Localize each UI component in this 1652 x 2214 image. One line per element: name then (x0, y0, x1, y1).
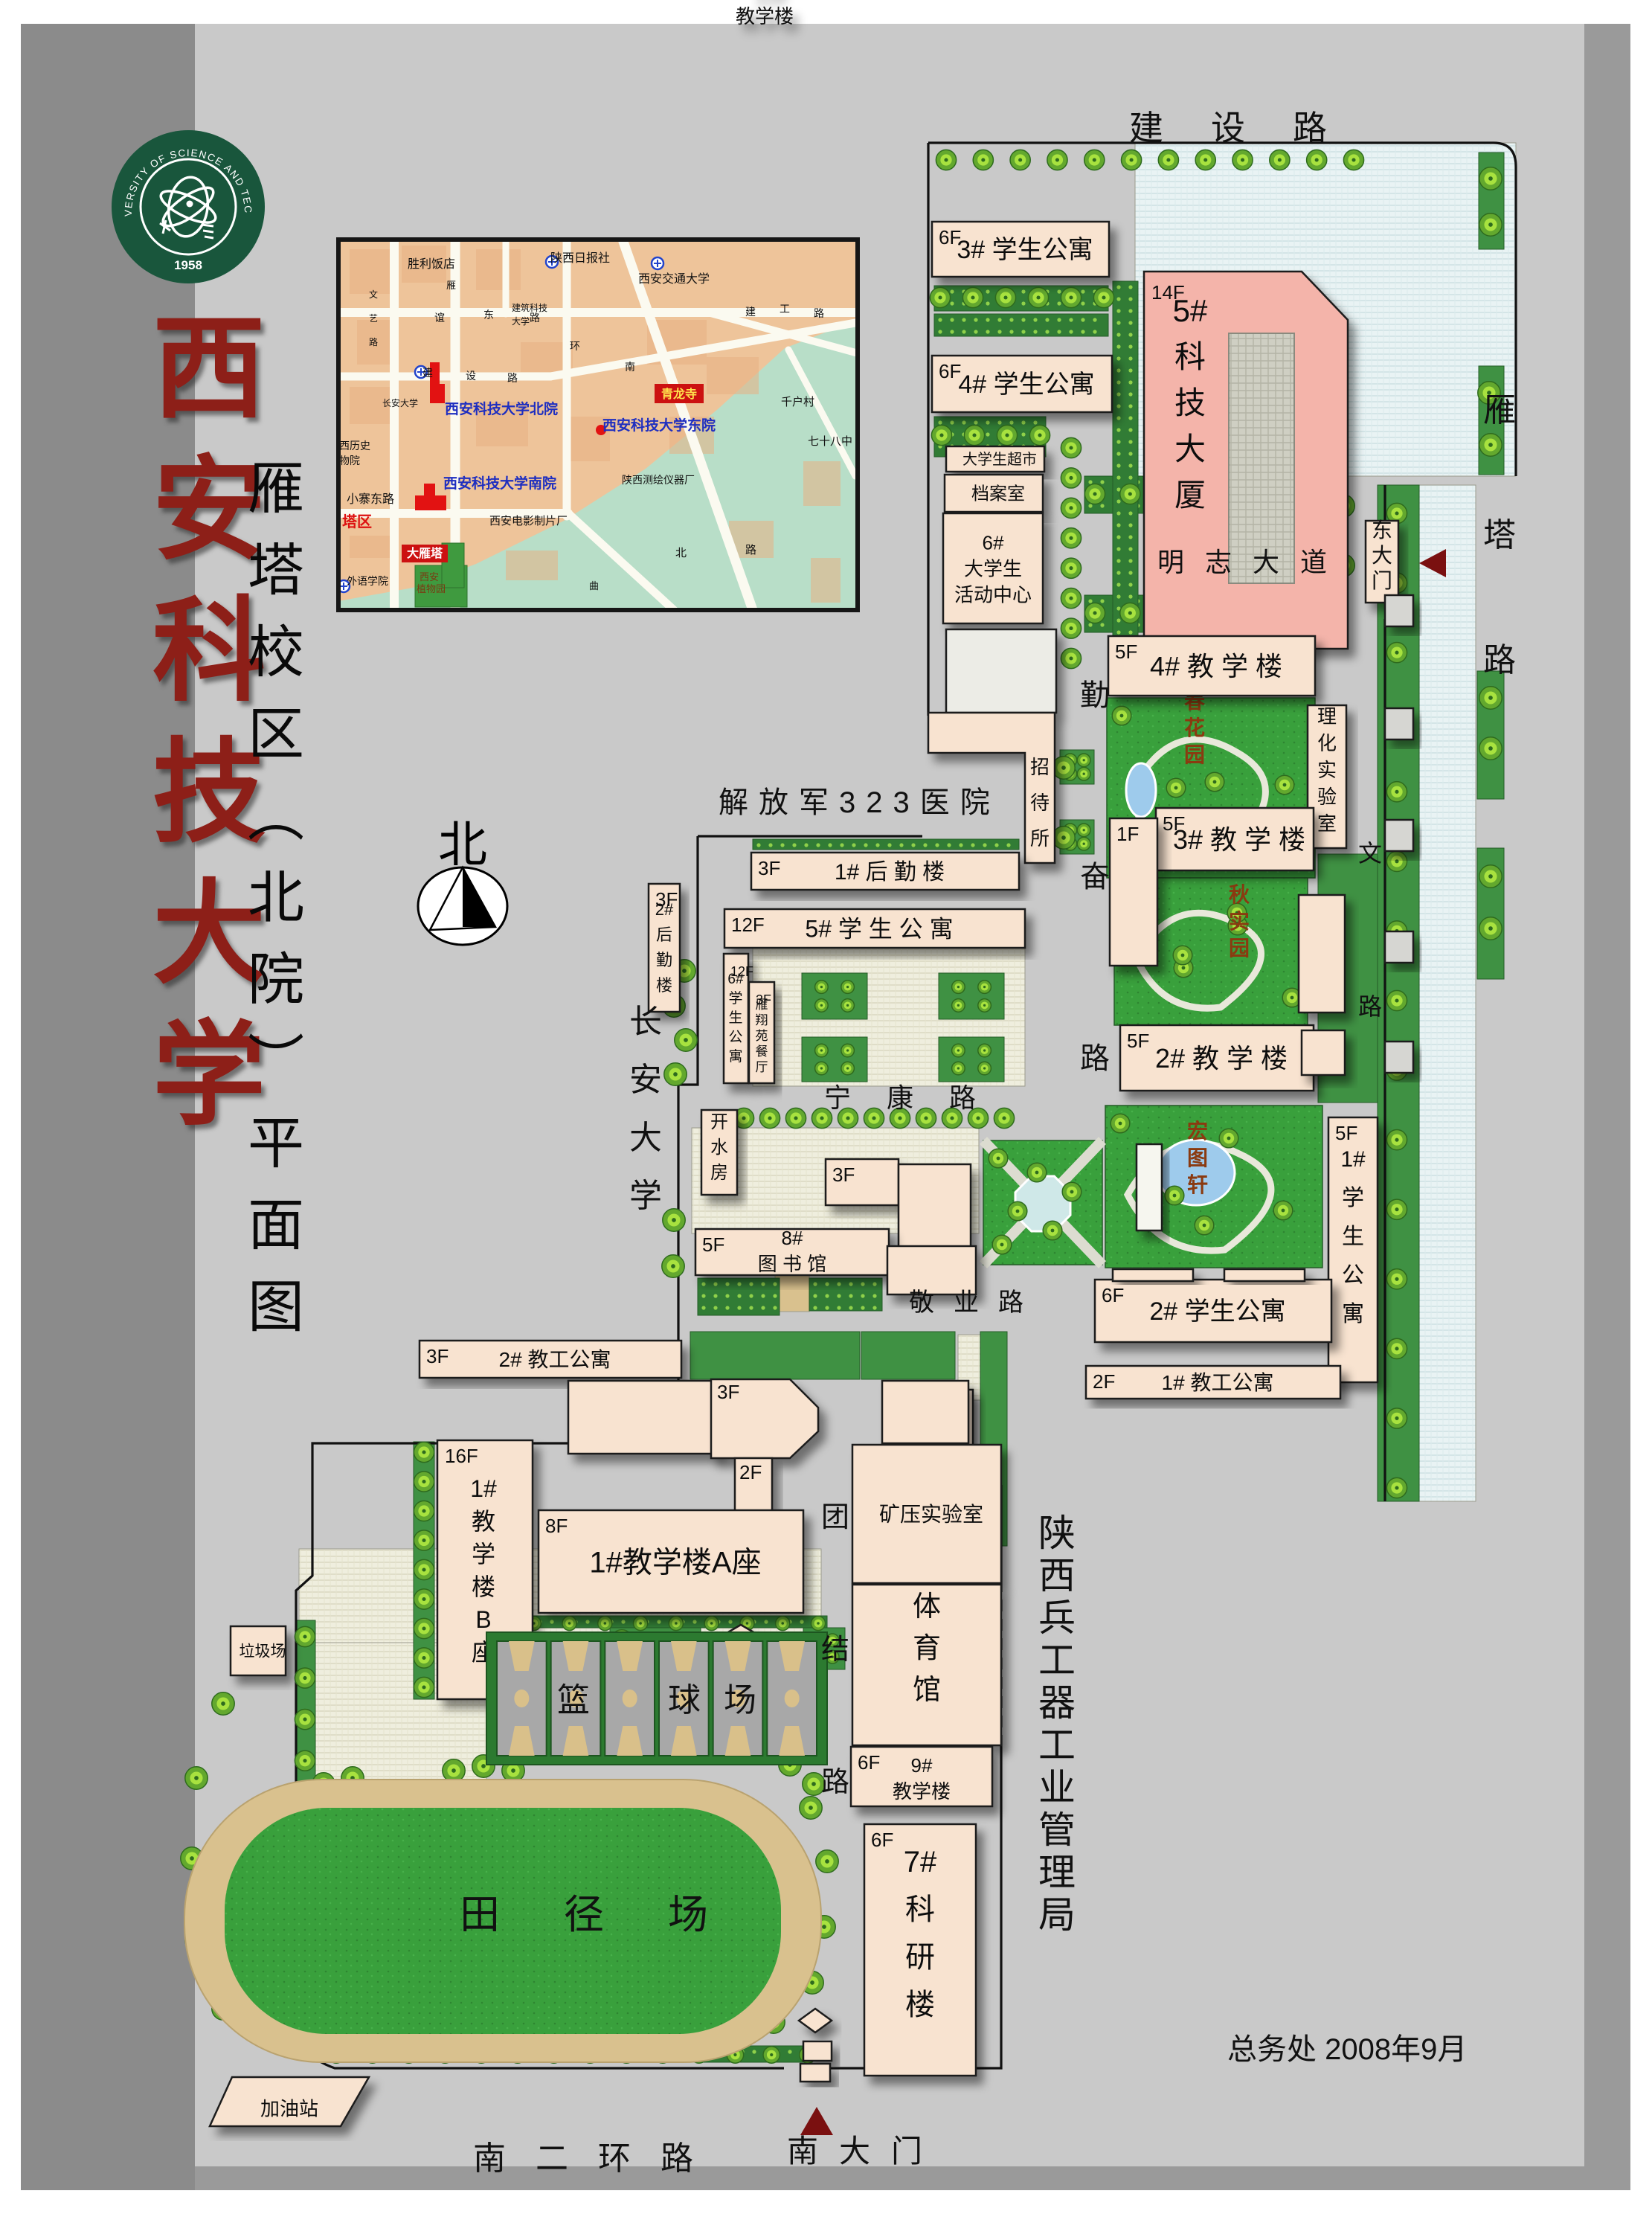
tree-core (1119, 1122, 1122, 1126)
tree-icon (962, 287, 983, 307)
tree-icon (1120, 603, 1140, 623)
tree-core (303, 1634, 306, 1638)
hedge-dot (1116, 463, 1120, 467)
hedge-dot (875, 843, 879, 847)
bed-area (802, 1037, 867, 1082)
building-label-vertical: 开水房 (710, 1112, 728, 1183)
building-shape (803, 2041, 832, 2061)
tree-icon (1084, 150, 1105, 170)
tree-core (825, 1859, 829, 1864)
inset-campus-marker (430, 384, 445, 403)
floor-label-5F: 5F (1115, 641, 1137, 663)
tree-icon (1386, 1130, 1407, 1150)
inset-label-物院: 物院 (339, 455, 360, 466)
tree-core (846, 986, 849, 988)
tree-core (997, 1157, 1000, 1161)
map-label-敬业路: 敬业路 (909, 1289, 1043, 1317)
tree-icon (295, 1668, 315, 1688)
tree-icon (185, 1767, 208, 1789)
hedge-dot (1069, 318, 1073, 321)
hedge-dot (864, 843, 867, 847)
hedge-dot (947, 843, 951, 847)
building-体育馆: 体育馆 (852, 1585, 1001, 1745)
inset-label-建: 建 (422, 367, 433, 379)
hedge-dot (962, 420, 965, 424)
campus-title-vertical: 雁塔校区（北院）平面图 (229, 458, 311, 1358)
tree-icon (952, 999, 965, 1013)
building-label-line: 6# (983, 531, 1004, 553)
tree-core (511, 1768, 515, 1773)
hedge-dot (1069, 330, 1073, 333)
hedge-dot (550, 1620, 553, 1623)
hedge-dot (1128, 416, 1132, 420)
tree-core (1181, 954, 1185, 957)
tree-core (422, 1480, 425, 1483)
hedge-dot (828, 843, 832, 847)
building-5# 学 生 公 寓: 12F5# 学 生 公 寓 (724, 909, 1025, 948)
publisher-date-note: 总务处 2008年9月 (1227, 2025, 1467, 2068)
tree-core (983, 1067, 986, 1069)
building-atrium (1229, 333, 1294, 583)
inset-label-大学: 大学 (512, 315, 530, 327)
building-shape (1299, 895, 1345, 1013)
inset-label-西安交通大学: 西安交通大学 (638, 272, 710, 286)
building-1# 后 勤 楼: 3F1# 后 勤 楼 (751, 853, 1019, 890)
inset-label-植物园: 植物园 (417, 583, 446, 594)
hedge-dot (950, 301, 954, 305)
tree-core (1070, 1190, 1074, 1194)
map-label-南二环路: 南二环路 (473, 2140, 723, 2177)
inset-label-设: 设 (466, 370, 476, 382)
university-logo: XI'AN UNIVERSITY OF SCIENCE AND TECHNOLO… (109, 126, 268, 287)
building-label-line: 9# (911, 1754, 933, 1777)
inset-label-七十八中: 七十八中 (808, 435, 852, 448)
tree-icon (1027, 1163, 1047, 1182)
tree-core (1069, 597, 1073, 600)
tree-icon (1121, 150, 1141, 170)
building-shape (1137, 1144, 1162, 1230)
hedge-dot (938, 420, 942, 424)
tree-icon (1479, 214, 1502, 236)
hedge-dot (1116, 583, 1120, 586)
tree-core (1038, 433, 1041, 437)
building-1#教学楼A座: 8F1#教学楼A座 (539, 1510, 803, 1613)
building: 3F (826, 1159, 899, 1205)
hedge-dot (1116, 333, 1120, 336)
tree-core (1128, 492, 1132, 495)
tree-core (422, 1538, 425, 1542)
tree-core (1093, 611, 1096, 615)
hedge-dot (1128, 404, 1132, 408)
floor-label-1F: 1F (1116, 823, 1139, 845)
tree-icon (1479, 434, 1502, 456)
tree-icon (1061, 588, 1081, 609)
hedge-dot (1116, 499, 1120, 503)
building (1224, 1269, 1305, 1281)
tree-core (1395, 790, 1398, 794)
tree-core (1000, 1243, 1004, 1247)
tree-icon (212, 1692, 234, 1715)
tree-icon (992, 1235, 1012, 1254)
tree-icon (1052, 827, 1075, 849)
hedge-dot (872, 1294, 876, 1297)
tree-core (1055, 158, 1059, 161)
hedge-dot (983, 843, 986, 847)
tree-core (820, 1067, 823, 1069)
tree-core (451, 1768, 456, 1773)
hedge-dot (1128, 356, 1132, 360)
hedge-area (934, 286, 1108, 311)
building-垃圾场: 垃圾场 (231, 1626, 286, 1675)
tree-icon (1010, 150, 1030, 170)
tree-icon (1008, 1201, 1027, 1221)
building-label: 2# 教 学 楼 (1155, 1043, 1288, 1074)
hedge-dot (1116, 392, 1120, 396)
floor-label-3F: 3F (832, 1164, 855, 1186)
hedge-dot (1100, 504, 1104, 507)
tree-icon (1173, 946, 1192, 965)
inset-campus-marker (415, 495, 446, 510)
building-label-line: 8# (782, 1227, 803, 1249)
building-label: 加油站 (260, 2097, 318, 2120)
tree-icon (815, 999, 829, 1013)
hedge-dot (986, 330, 989, 333)
tree-core (976, 1116, 980, 1120)
building-label-vertical: 招待所 (1030, 756, 1050, 850)
court-circle (514, 1690, 529, 1707)
tree-core (1395, 1347, 1398, 1350)
tree-icon (952, 981, 965, 994)
tree-core (221, 1701, 225, 1706)
floor-label-3F: 3F (758, 857, 780, 879)
building-label-vertical: 5#科技大厦 (1173, 293, 1208, 513)
hedge-dot (974, 330, 977, 333)
tree-icon (1043, 1221, 1062, 1240)
logo-year: 1958 (174, 258, 202, 272)
inset-label-陕西日报社: 陕西日报社 (550, 251, 610, 265)
tree-icon (978, 1062, 991, 1075)
building (1302, 1030, 1345, 1075)
tree-core (846, 1116, 849, 1120)
tree-icon (952, 1062, 965, 1075)
hedge-dot (1128, 594, 1132, 598)
tree-icon (841, 1044, 855, 1057)
tree-icon (1479, 737, 1502, 760)
building-shape (899, 1164, 971, 1248)
hedge-dot (837, 1294, 841, 1297)
tree-core (1173, 1194, 1177, 1198)
tree-icon (964, 425, 984, 445)
hedge-dot (1128, 380, 1132, 384)
tree-core (1278, 158, 1282, 161)
inset-label-小寨东路: 小寨东路 (347, 492, 394, 506)
inset-label-西历史: 西历史 (339, 440, 370, 452)
hedge-dot (1128, 321, 1132, 324)
map-label-南大门: 南大门 (787, 2134, 943, 2169)
building-label: 1# 后 勤 楼 (835, 860, 945, 885)
tree-icon (414, 1677, 434, 1697)
building-shape (800, 2064, 830, 2082)
building-label-line: 大学生 (964, 557, 1022, 580)
tree-core (957, 1067, 960, 1069)
hedge-dot (1081, 301, 1084, 305)
hedge-dot (1021, 318, 1025, 321)
tree-icon (1084, 484, 1105, 504)
tree-core (983, 986, 986, 988)
pond (1126, 763, 1156, 817)
hedge-dot (986, 420, 989, 424)
inset-label-建: 建 (745, 306, 756, 318)
building (568, 1381, 717, 1454)
tree-icon (1061, 528, 1081, 548)
tree-icon (414, 1589, 434, 1609)
inset-label-胜利饭店: 胜利饭店 (408, 257, 455, 271)
tree-core (794, 1116, 797, 1120)
tree-core (422, 1626, 425, 1630)
inset-label-路: 路 (530, 312, 540, 324)
tree-core (746, 1622, 749, 1625)
building-label: 4# 教 学 楼 (1150, 651, 1282, 681)
building-label-line: 教学楼 (736, 5, 794, 28)
tree-icon (1029, 425, 1050, 445)
hedge-dot (713, 1306, 717, 1309)
hedge-dot (1006, 843, 1010, 847)
hedge-dot (773, 1282, 777, 1286)
tree-core (1093, 492, 1096, 495)
hedge-dot (1033, 318, 1037, 321)
tree-core (1291, 996, 1294, 1000)
hedge-dot (899, 843, 903, 847)
tree-core (983, 1004, 986, 1007)
tree-icon (815, 1062, 829, 1075)
tree-core (1488, 696, 1493, 700)
tree-core (810, 1980, 814, 1985)
building-2# 学生公寓: 6F2# 学生公寓 (1095, 1280, 1331, 1342)
map-label-宁康路: 宁康路 (824, 1082, 1012, 1113)
hedge-dot (1116, 344, 1120, 348)
building (1385, 820, 1413, 851)
hedge-dot (962, 318, 965, 321)
hedge-dot (621, 1620, 625, 1623)
hedge-dot (768, 843, 772, 847)
inset-label-南: 南 (625, 361, 635, 373)
lawn-area (861, 1332, 955, 1379)
hedge-dot (825, 1282, 829, 1286)
hedge-dot (1057, 318, 1061, 321)
tree-icon (675, 1029, 697, 1051)
hedge-dot (692, 1620, 696, 1623)
tree-core (938, 295, 942, 299)
hedge-dot (1116, 571, 1120, 574)
hedge-dot (1128, 392, 1132, 396)
floor-label-8F: 8F (545, 1515, 568, 1537)
tree-core (1102, 295, 1105, 299)
tree-icon (704, 1616, 719, 1630)
building-label-vertical: 雁翔苑餐厅 (756, 998, 768, 1074)
building (887, 1246, 976, 1294)
building-4# 学生公寓: 6F4# 学生公寓 (932, 356, 1112, 412)
garden-name-秋实园: 秋实园 (1229, 883, 1250, 960)
hedge-dot (1088, 623, 1092, 626)
hedge-dot (1128, 368, 1132, 372)
tree-core (1488, 746, 1493, 751)
inset-landmark-大雁塔: 大雁塔 (407, 546, 443, 560)
tree-core (422, 1568, 425, 1571)
tree-core (1395, 1207, 1398, 1211)
hedge-dot (861, 1294, 864, 1297)
tree-core (846, 1049, 849, 1051)
tree-core (673, 1072, 678, 1076)
tree-icon (1166, 778, 1186, 798)
hedge-dot (997, 330, 1001, 333)
bed-area (939, 973, 1004, 1019)
hedge-dot (1116, 475, 1120, 479)
building-shape (1113, 1269, 1193, 1281)
hedge-dot (887, 843, 891, 847)
building-1#学生公寓: 5F1#学生公寓 (1328, 1117, 1378, 1382)
tree-core (781, 1622, 784, 1625)
floor-label-6F: 6F (871, 1829, 893, 1851)
hedge-dot (1128, 630, 1132, 634)
building-shape (1385, 708, 1413, 739)
bed-area (802, 973, 867, 1019)
inset-label-路: 路 (745, 544, 756, 556)
hedge-dot (1128, 535, 1132, 539)
hedge-dot (938, 330, 942, 333)
tree-icon (1273, 1201, 1293, 1220)
hedge-dot (1128, 463, 1132, 467)
tree-core (1018, 158, 1022, 161)
building-label-line: 图 书 馆 (758, 1253, 826, 1275)
tree-icon (841, 999, 855, 1013)
tree-core (1036, 295, 1040, 299)
map-label-篮: 篮 (557, 1682, 590, 1719)
hedge-dot (986, 301, 989, 305)
tree-core (1083, 829, 1085, 831)
hedge-dot (938, 318, 942, 321)
building (1113, 1269, 1193, 1281)
tree-icon (1061, 287, 1081, 307)
tree-icon (414, 1559, 434, 1579)
tree-icon (1061, 468, 1081, 488)
tree-icon (1077, 824, 1090, 837)
building-5#科技大厦: 14F5#科技大厦 (1144, 272, 1348, 649)
hedge-dot (773, 1294, 777, 1297)
hedge-dot (816, 843, 820, 847)
tree-core (1069, 656, 1073, 660)
hedge-dot (788, 2050, 791, 2053)
tree-core (944, 158, 948, 161)
hedge-dot (813, 1294, 817, 1297)
building-1# 教工公寓: 2F1# 教工公寓 (1086, 1366, 1340, 1399)
building-label-line: 活动中心 (954, 583, 1032, 606)
tree-icon (936, 150, 956, 170)
building-档案室: 档案室 (945, 475, 1043, 512)
hedge-dot (737, 1294, 741, 1297)
hedge-dot (761, 1282, 765, 1286)
tree-core (568, 1622, 571, 1625)
hedge-dot (813, 1306, 817, 1309)
hedge-dot (911, 843, 915, 847)
building-矿压实验室: 矿压实验室 (852, 1445, 1001, 1583)
tree-icon (1307, 150, 1327, 170)
tree-icon (1077, 837, 1090, 850)
hedge-dot (837, 1282, 841, 1286)
hedge-dot (950, 330, 954, 333)
tree-icon (598, 1616, 612, 1630)
hedge-dot (752, 2050, 756, 2053)
inset-label-千户村: 千户村 (781, 396, 814, 408)
inset-city-block (350, 536, 394, 558)
hedge-dot (1116, 630, 1120, 634)
inset-label-陕西测绘仪器厂: 陕西测绘仪器厂 (622, 474, 695, 486)
hedge-dot (849, 1282, 852, 1286)
tree-core (1174, 786, 1178, 790)
building-2# 教工公寓: 3F2# 教工公寓 (420, 1341, 681, 1378)
hedge-dot (935, 843, 939, 847)
tree-icon (1061, 618, 1081, 638)
hedge-dot (804, 843, 808, 847)
tree-core (684, 1038, 688, 1042)
hedge-dot (861, 1306, 864, 1309)
hedge-dot (974, 420, 977, 424)
tree-icon (800, 1797, 822, 1819)
tree-core (303, 1676, 306, 1680)
hedge-dot (1128, 285, 1132, 289)
hedge-dot (1128, 452, 1132, 455)
building-shape (568, 1381, 717, 1454)
hedge-dot (1128, 511, 1132, 515)
hedge-dot (713, 1294, 717, 1297)
tree-core (1395, 998, 1398, 1002)
hedge-dot (1033, 330, 1037, 333)
inset-label-路: 路 (507, 372, 518, 384)
tree-icon (1386, 851, 1407, 871)
bed-area (939, 1037, 1004, 1082)
inset-label-东: 东 (483, 309, 494, 321)
hedge-dot (737, 1282, 741, 1286)
tree-core (898, 1116, 901, 1120)
tree-core (1488, 222, 1493, 227)
tree-core (422, 1685, 425, 1689)
inset-label-西安电影制片厂: 西安电影制片厂 (489, 515, 568, 527)
tree-core (1395, 1416, 1398, 1420)
building-大学生超市: 大学生超市 (946, 446, 1044, 472)
tree-core (1213, 780, 1217, 784)
hedge-dot (701, 1282, 705, 1286)
hedge-dot (950, 318, 954, 321)
building (1385, 931, 1413, 963)
tree-icon (1343, 150, 1363, 170)
hedge-dot (1045, 330, 1049, 333)
tree-core (1005, 433, 1009, 437)
hedge-dot (971, 843, 974, 847)
building-东大门: 东大门 (1366, 519, 1398, 603)
map-label-场: 场 (724, 1682, 756, 1719)
tree-core (1061, 766, 1066, 770)
building-label: 2# 学生公寓 (1149, 1297, 1285, 1326)
building-label-vertical: 东大门 (1372, 519, 1392, 592)
tree-icon (997, 425, 1017, 445)
building-label-vertical: 6#学生公寓 (727, 972, 744, 1065)
tree-core (1203, 158, 1207, 161)
tree-core (1128, 611, 1132, 615)
hedge-dot (994, 843, 998, 847)
building-2#后勤楼: 3F2#后勤楼 (649, 884, 680, 1012)
garden-name-春花园: 春花园 (1184, 690, 1205, 766)
tree-core (1488, 176, 1493, 181)
building (1137, 1144, 1162, 1230)
